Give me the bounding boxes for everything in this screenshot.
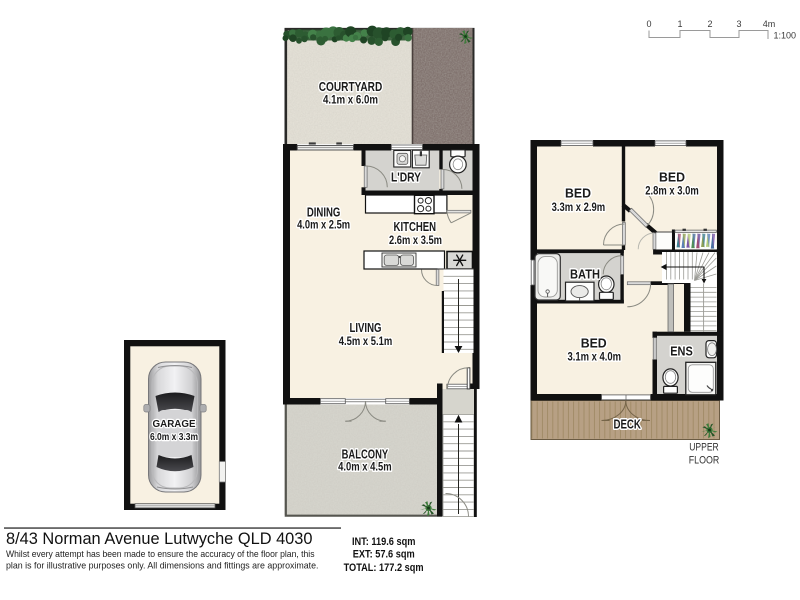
svg-text:UPPER: UPPER: [689, 442, 719, 454]
svg-text:2.8m x 3.0m: 2.8m x 3.0m: [645, 185, 699, 197]
svg-text:DINING: DINING: [307, 206, 341, 220]
svg-text:LIVING: LIVING: [350, 321, 382, 335]
svg-text:4.5m x 5.1m: 4.5m x 5.1m: [339, 336, 393, 348]
svg-text:4.1m x 6.0m: 4.1m x 6.0m: [323, 95, 378, 107]
svg-text:BALCONY: BALCONY: [342, 447, 389, 461]
svg-text:KITCHEN: KITCHEN: [394, 220, 437, 234]
svg-text:BATH: BATH: [570, 268, 600, 282]
svg-text:2: 2: [707, 19, 712, 29]
svg-text:BED: BED: [581, 336, 607, 350]
svg-text:4.0m x 4.5m: 4.0m x 4.5m: [338, 462, 392, 474]
svg-text:TOTAL: 177.2 sqm: TOTAL: 177.2 sqm: [344, 562, 424, 574]
svg-text:INT: 119.6 sqm: INT: 119.6 sqm: [352, 536, 416, 548]
svg-text:FLOOR: FLOOR: [689, 455, 720, 467]
svg-text:3: 3: [736, 19, 741, 29]
svg-text:plan is for illustrative purpo: plan is for illustrative purposes only. …: [6, 559, 319, 570]
svg-text:2.6m x 3.5m: 2.6m x 3.5m: [389, 235, 442, 247]
svg-text:1: 1: [677, 19, 682, 29]
svg-text:4.0m x 2.5m: 4.0m x 2.5m: [297, 219, 350, 231]
svg-text:8/43 Norman Avenue Lutwyche QL: 8/43 Norman Avenue Lutwyche QLD 4030: [6, 529, 313, 548]
svg-text:0: 0: [646, 19, 651, 29]
svg-text:BED: BED: [659, 171, 685, 185]
svg-text:GARAGE: GARAGE: [153, 418, 196, 430]
svg-text:Whilst every attempt has been: Whilst every attempt has been made to en…: [6, 548, 315, 559]
svg-text:6.0m x 3.3m: 6.0m x 3.3m: [150, 431, 198, 443]
svg-text:4m: 4m: [763, 19, 776, 29]
svg-text:EXT: 57.6 sqm: EXT: 57.6 sqm: [353, 548, 415, 560]
svg-text:3.3m x 2.9m: 3.3m x 2.9m: [552, 202, 606, 214]
svg-text:3.1m x 4.0m: 3.1m x 4.0m: [568, 351, 622, 363]
svg-text:DECK: DECK: [613, 417, 641, 431]
svg-text:L'DRY: L'DRY: [391, 171, 422, 185]
svg-text:1:100: 1:100: [773, 31, 796, 41]
svg-text:BED: BED: [565, 187, 591, 201]
svg-text:COURTYARD: COURTYARD: [319, 80, 383, 94]
svg-text:ENS: ENS: [670, 344, 693, 358]
